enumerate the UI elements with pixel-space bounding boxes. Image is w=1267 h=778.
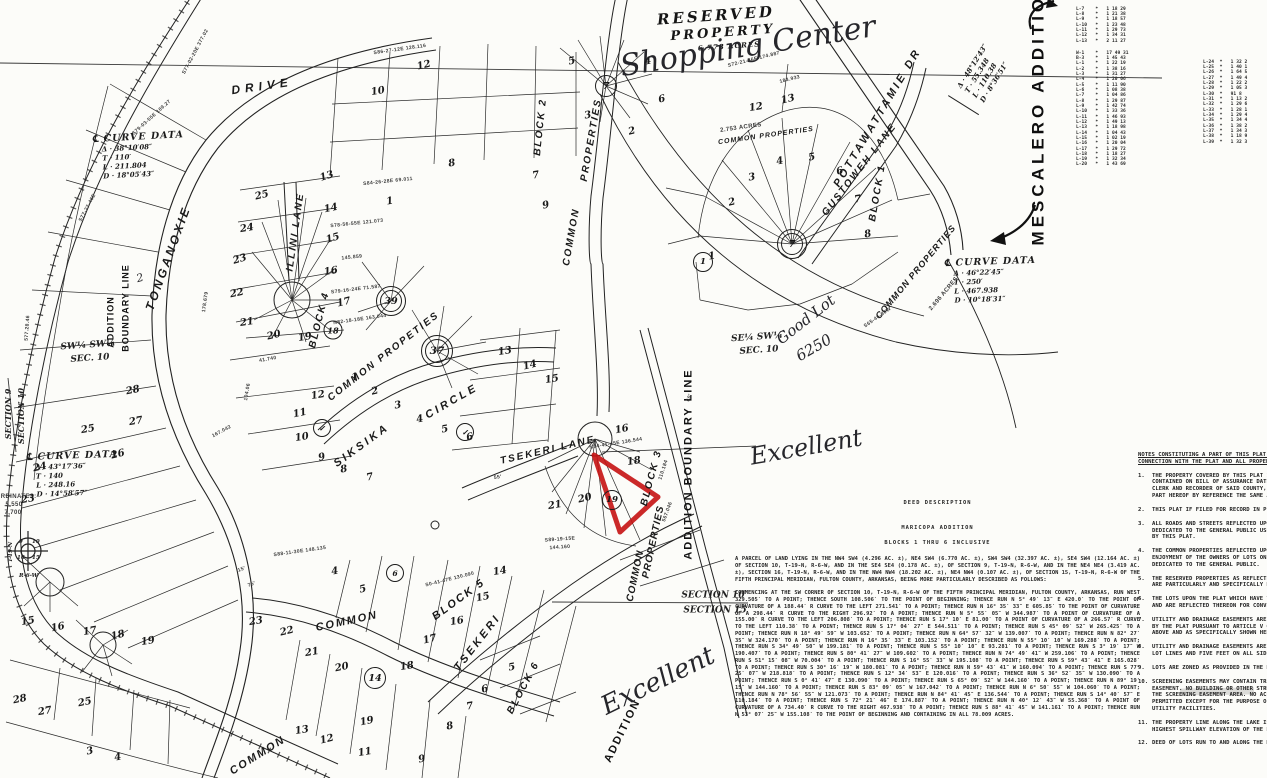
note-item: 9.LOTS ARE ZONED AS PROVIDED IN THE BILL… — [1138, 665, 1267, 672]
note-item: 11.THE PROPERTY LINE ALONG THE LAKE IS A… — [1138, 720, 1267, 734]
corner-range-label: R-6-W — [19, 573, 38, 579]
note-text: THE PROPERTY COVERED BY THIS PLAT IS SUB… — [1152, 473, 1267, 500]
deed-subheading: BLOCKS 1 THRU 6 INCLUSIVE — [735, 540, 1140, 547]
note-text: ALL ROADS AND STREETS REFLECTED UPON THE… — [1152, 521, 1267, 541]
corner-quadrant-nw: 9 — [19, 539, 23, 545]
note-item: 7.UTILITY AND DRAINAGE EASEMENTS ARE RES… — [1138, 617, 1267, 637]
note-number: 8. — [1138, 644, 1152, 658]
note-text: UTILITY AND DRAINAGE EASEMENTS ARE RESER… — [1152, 617, 1267, 637]
section-corner-symbol: 9 10 16 15 T-19-N R-6-W — [5, 529, 51, 581]
note-number: 12. — [1138, 740, 1152, 747]
note-text: UTILITY AND DRAINAGE EASEMENTS ARE SEVEN… — [1152, 644, 1267, 658]
deed-paragraphs: A PARCEL OF LAND LYING IN THE NW4 SW4 (4… — [735, 556, 1140, 718]
note-item: 2.THIS PLAT IF FILED FOR RECORD IN PLAT … — [1138, 507, 1267, 514]
corner-township-label: T-19-N — [8, 542, 14, 562]
notes-title-line2: CONNECTION WITH THE PLAT AND ALL PROPERT… — [1138, 459, 1267, 466]
deed-description: DEED DESCRIPTION MARICOPA ADDITION BLOCK… — [735, 500, 1140, 726]
note-text: THE COMMON PROPERTIES REFLECTED UPON THE… — [1152, 548, 1267, 568]
lot-19-highlight-triangle — [594, 455, 658, 532]
deed-paragraph: A PARCEL OF LAND LYING IN THE NW4 SW4 (4… — [735, 556, 1140, 583]
plat-map-page: DRIVETONGANOXIEILLINI LANESIKSIKACIRCLET… — [0, 0, 1267, 778]
note-item: 8.UTILITY AND DRAINAGE EASEMENTS ARE SEV… — [1138, 644, 1267, 658]
note-number: 1. — [1138, 473, 1152, 500]
note-item: 3.ALL ROADS AND STREETS REFLECTED UPON T… — [1138, 521, 1267, 541]
notes-list: 1.THE PROPERTY COVERED BY THIS PLAT IS S… — [1138, 473, 1267, 748]
note-text: THE LOTS UPON THE PLAT WHICH HAVE THE NO… — [1152, 596, 1267, 610]
note-item: 6.THE LOTS UPON THE PLAT WHICH HAVE THE … — [1138, 596, 1267, 610]
note-number: 7. — [1138, 617, 1152, 637]
corner-quadrant-sw: 16 — [17, 555, 25, 561]
note-item: 4.THE COMMON PROPERTIES REFLECTED UPON T… — [1138, 548, 1267, 568]
note-number: 11. — [1138, 720, 1152, 734]
note-text: THE RESERVED PROPERTIES AS REFLECTED UPO… — [1152, 576, 1267, 590]
note-number: 10. — [1138, 679, 1152, 713]
note-item: 10.SCREENING EASEMENTS MAY CONTAIN TREES… — [1138, 679, 1267, 713]
note-item: 1.THE PROPERTY COVERED BY THIS PLAT IS S… — [1138, 473, 1267, 500]
corner-quadrant-se: 15 — [32, 555, 40, 561]
lot-table-group-a1: L-7 * 1 18 29 L-8 * 1 21 38 L-9 * 1 18 5… — [1076, 7, 1126, 44]
lot-table-group-b: L-24 * 1 32 2 L-25 * 1 40 1 L-26 * 1 64 … — [1203, 60, 1247, 145]
notes-title-line1: NOTES CONSTITUTING A PART OF THIS PLAT A… — [1138, 452, 1267, 459]
deed-heading: MARICOPA ADDITION — [735, 525, 1140, 532]
note-text: THE PROPERTY LINE ALONG THE LAKE IS A ME… — [1152, 720, 1267, 734]
note-text: DEED OF LOTS RUN TO AND ALONG THE MEAN H… — [1152, 740, 1267, 747]
note-number: 3. — [1138, 521, 1152, 541]
note-text: THIS PLAT IF FILED FOR RECORD IN PLAT BO… — [1152, 507, 1267, 514]
deed-title: DEED DESCRIPTION — [735, 500, 1140, 507]
note-item: 5.THE RESERVED PROPERTIES AS REFLECTED U… — [1138, 576, 1267, 590]
lot-table-group-a2: W-1 * 17 49 31 B-3 * 1 45 43 L-1 * 1 22 … — [1076, 51, 1129, 168]
note-number: 9. — [1138, 665, 1152, 672]
note-number: 6. — [1138, 596, 1152, 610]
deed-paragraph: COMMENCING AT THE SW CORNER OF SECTION 1… — [735, 590, 1140, 718]
note-number: 5. — [1138, 576, 1152, 590]
note-text: LOTS ARE ZONED AS PROVIDED IN THE BILL O… — [1152, 665, 1267, 672]
note-number: 4. — [1138, 548, 1152, 568]
plat-notes: NOTES CONSTITUTING A PART OF THIS PLAT A… — [1138, 452, 1267, 747]
note-text: SCREENING EASEMENTS MAY CONTAIN TREES, S… — [1152, 679, 1267, 713]
note-number: 2. — [1138, 507, 1152, 514]
corner-quadrant-ne: 10 — [32, 539, 40, 545]
mescalero-arrows — [990, 0, 1058, 245]
note-item: 12.DEED OF LOTS RUN TO AND ALONG THE MEA… — [1138, 740, 1267, 747]
